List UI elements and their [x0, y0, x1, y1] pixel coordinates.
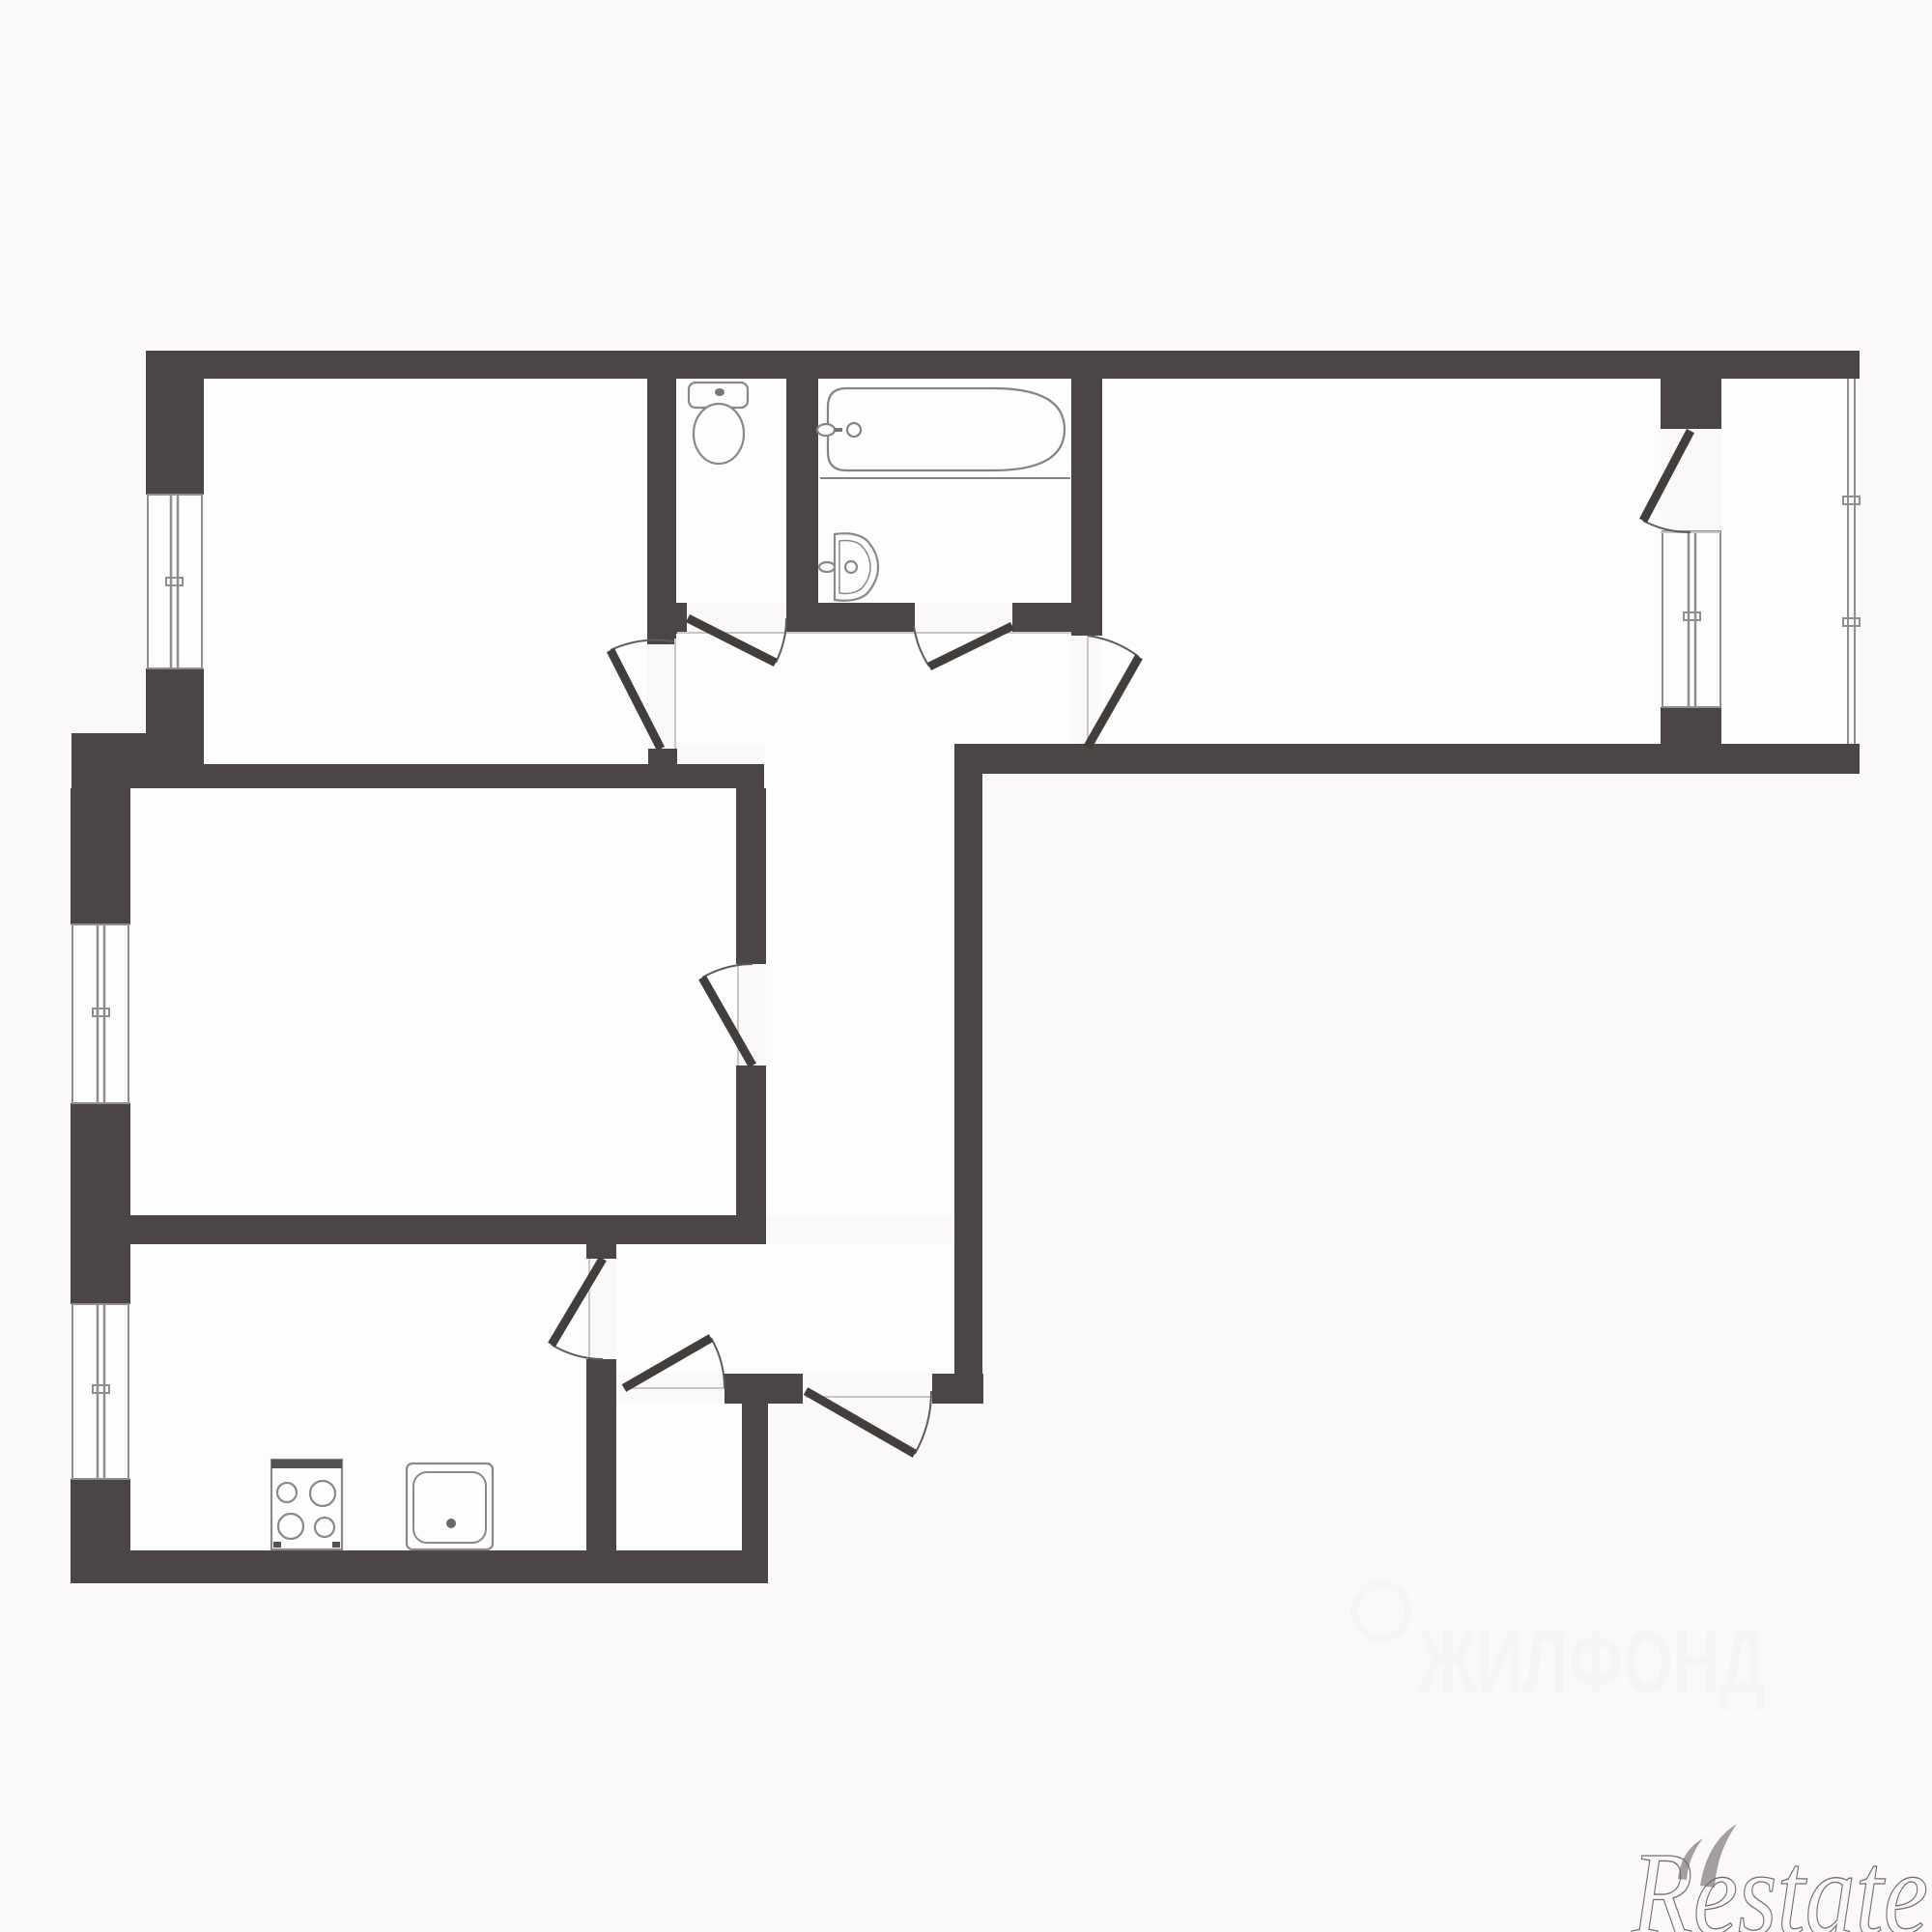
svg-text:Restate: Restate [1631, 1828, 1928, 1932]
svg-text:ЖИЛФОНД: ЖИЛФОНД [1417, 1613, 1766, 1712]
